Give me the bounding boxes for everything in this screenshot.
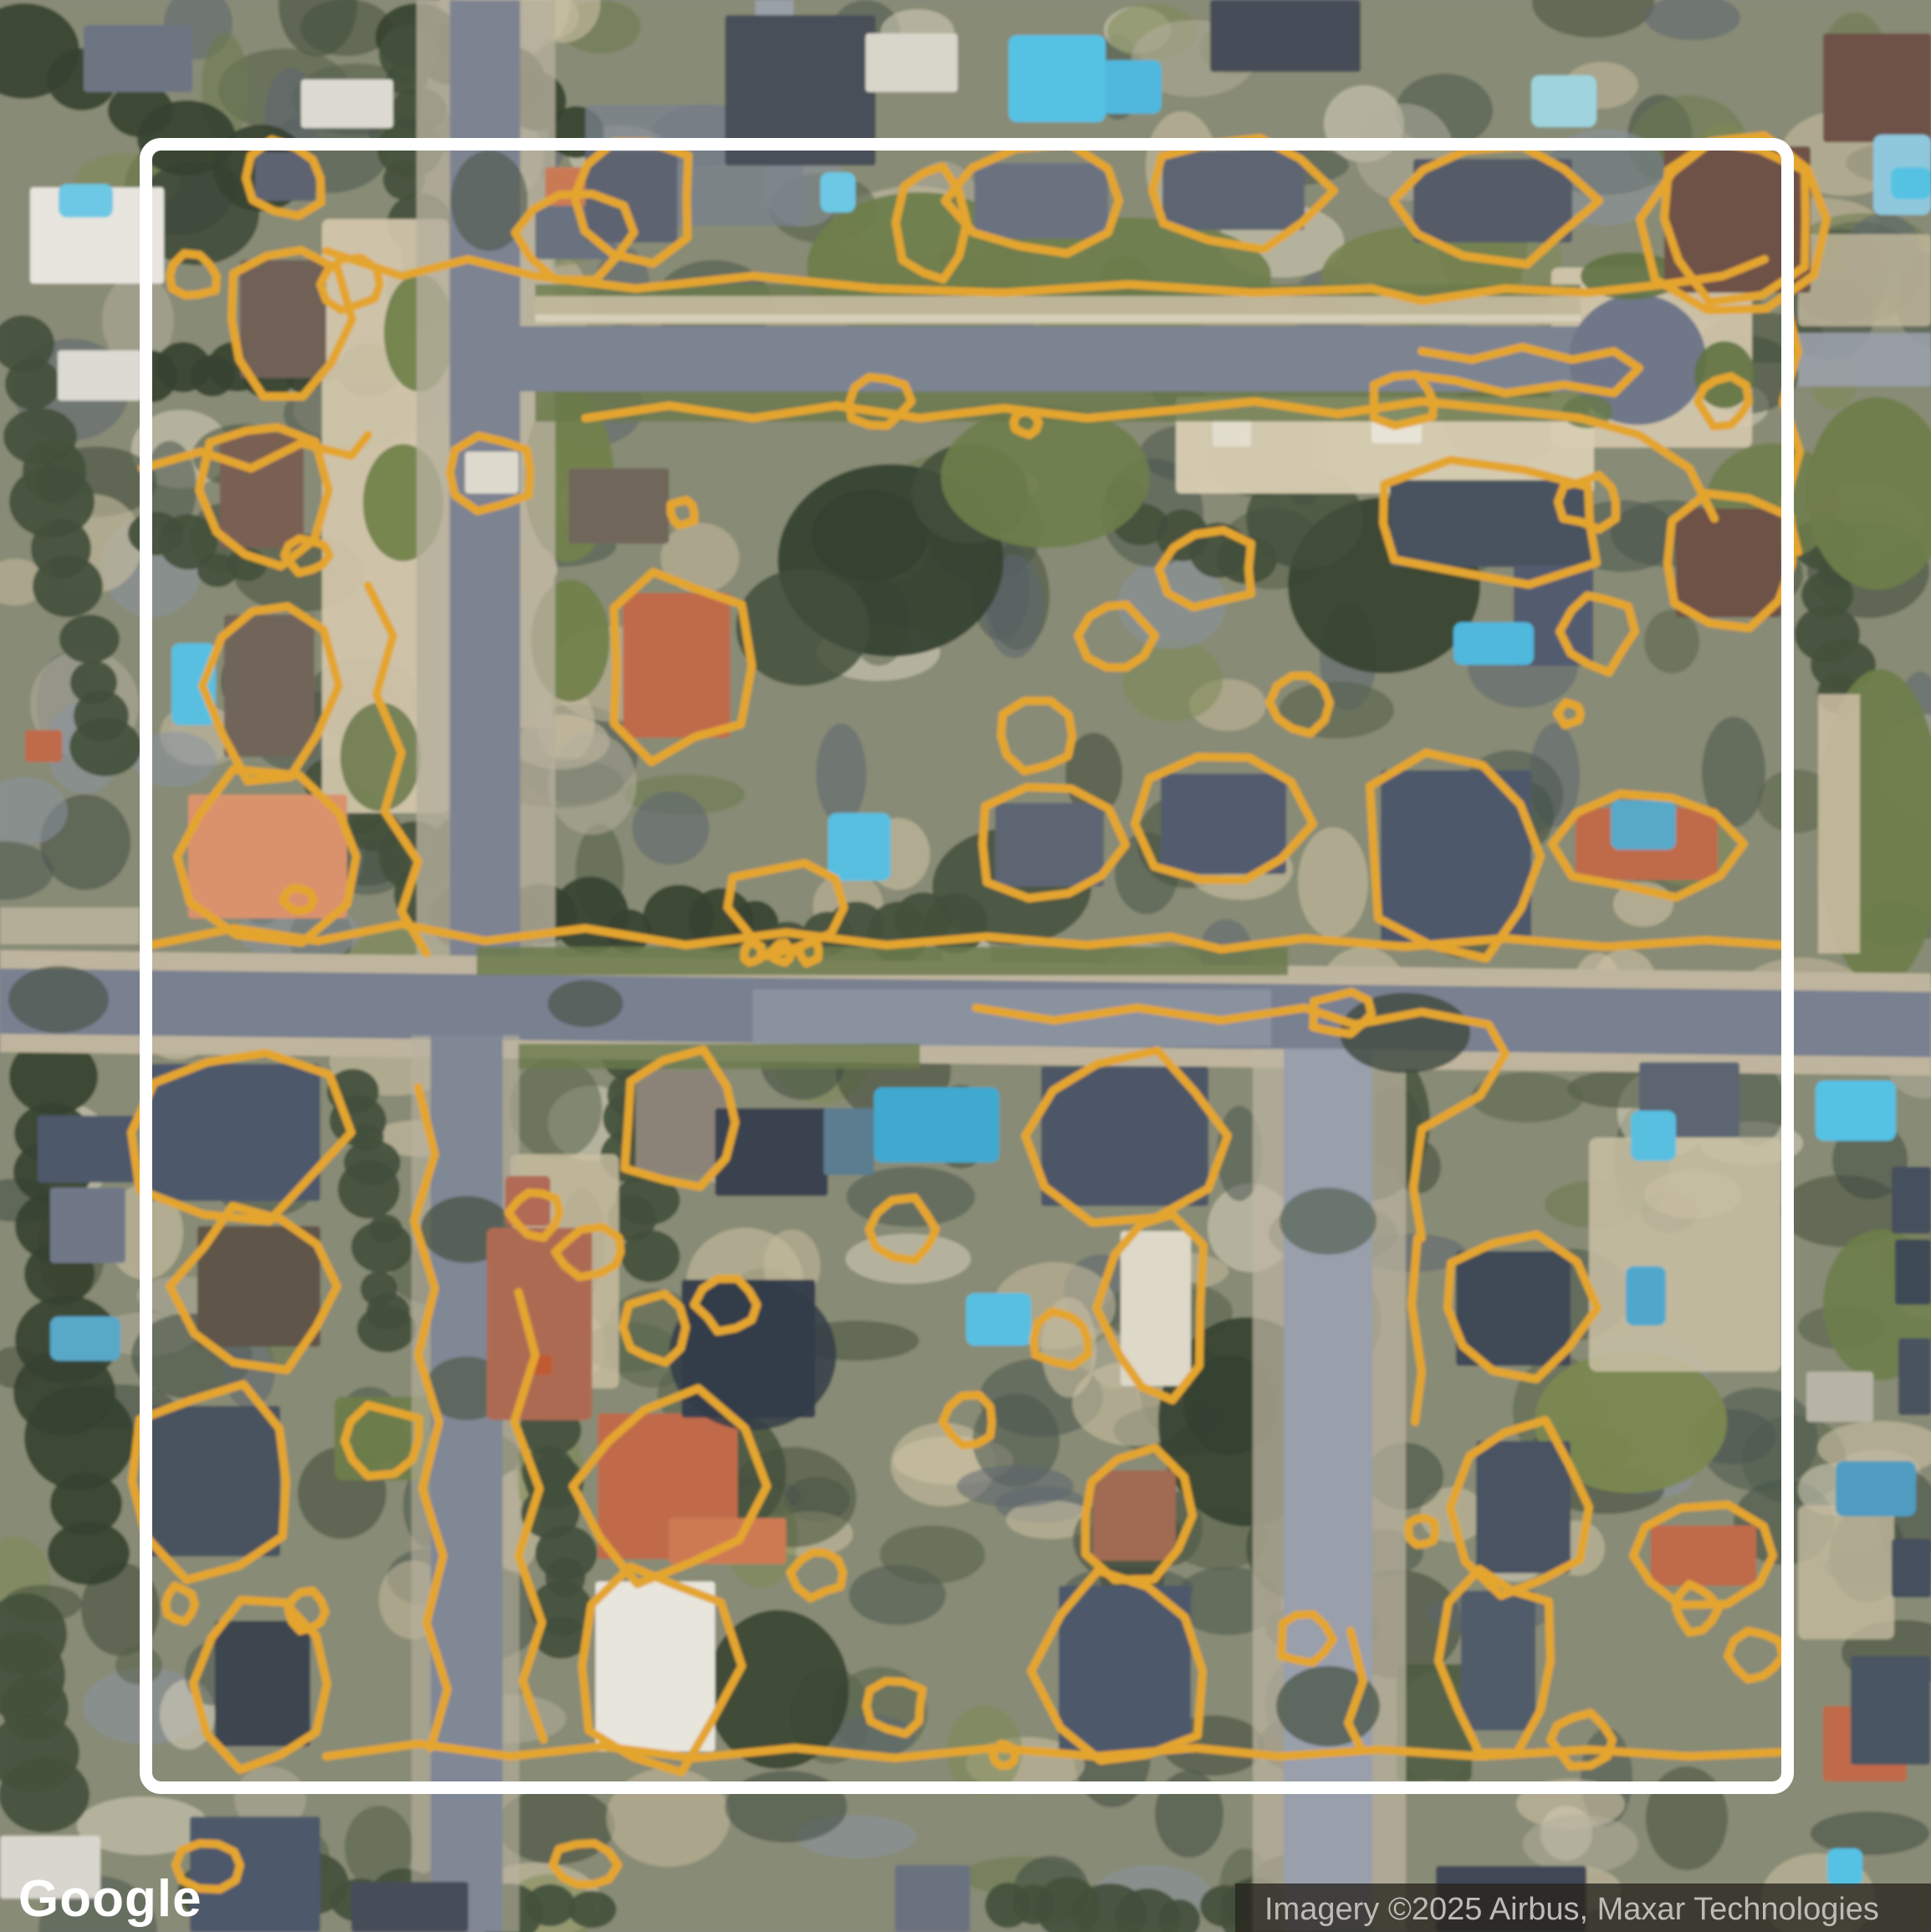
svg-text:Imagery ©2025 Airbus, Maxar Te: Imagery ©2025 Airbus, Maxar Technologies	[1264, 1892, 1879, 1927]
svg-text:Google: Google	[18, 1870, 202, 1928]
